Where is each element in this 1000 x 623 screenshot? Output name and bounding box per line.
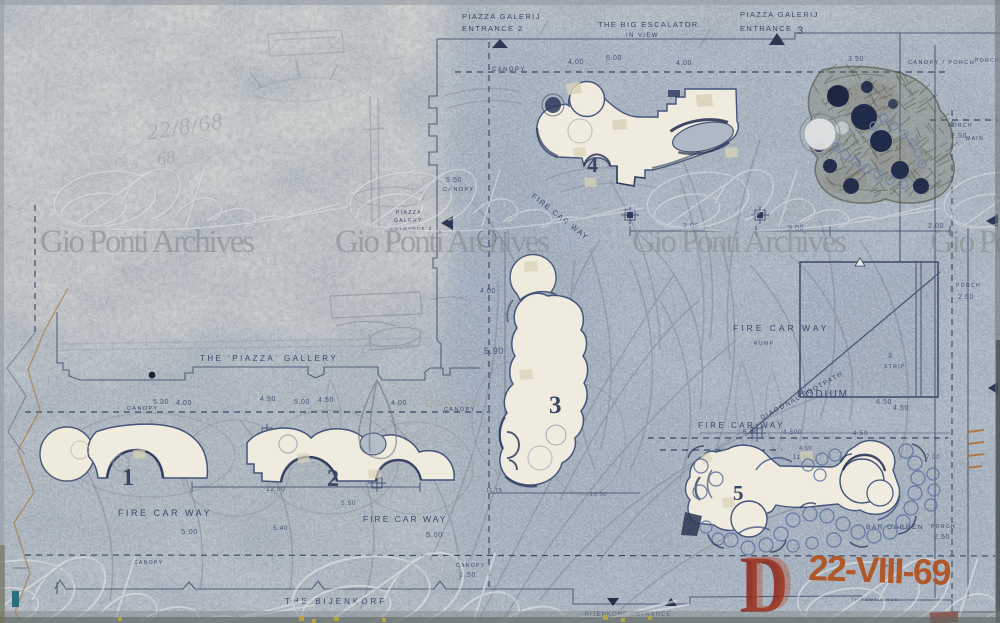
svg-text:THE BIG ESCALATOR: THE BIG ESCALATOR [598,20,699,29]
svg-text:12.00: 12.00 [266,486,285,493]
svg-text:4: 4 [587,152,598,177]
svg-text:1: 1 [122,465,134,491]
svg-text:D: D [745,538,794,623]
svg-text:11.75: 11.75 [486,488,502,494]
svg-text:5.50: 5.50 [446,177,462,184]
svg-text:CANOPY / PORCH: CANOPY / PORCH [908,60,975,66]
svg-text:CANOPY: CANOPY [492,67,526,73]
svg-text:5.00: 5.00 [294,399,310,406]
svg-text:ENTRANCE 2: ENTRANCE 2 [462,24,524,33]
svg-text:4.00: 4.00 [176,400,192,407]
svg-text:STRIP: STRIP [884,364,906,370]
svg-text:5.00: 5.00 [426,530,443,539]
svg-text:4.50: 4.50 [799,446,812,452]
svg-text:FIRE CAR WAY: FIRE CAR WAY [118,508,212,518]
svg-text:RUMP: RUMP [754,341,774,347]
svg-text:2.50: 2.50 [958,294,974,301]
svg-text:MAIN: MAIN [966,136,984,142]
svg-text:2.50: 2.50 [934,534,950,541]
svg-text:FIRE CAR WAY: FIRE CAR WAY [698,421,785,430]
svg-text:4.00: 4.00 [391,400,407,407]
svg-text:FIRE CAR WAY: FIRE CAR WAY [363,514,447,524]
svg-text:4.00: 4.00 [676,60,692,67]
svg-text:ENTRANCE: ENTRANCE [740,24,792,33]
svg-text:FIRE CAR WAY: FIRE CAR WAY [733,323,829,333]
svg-text:4.50: 4.50 [318,397,334,404]
svg-text:THE 'PIAZZA' GALLERY: THE 'PIAZZA' GALLERY [200,354,338,363]
svg-text:4.50: 4.50 [853,430,868,437]
svg-text:10.00: 10.00 [590,492,607,498]
svg-text:CANOPY: CANOPY [134,560,164,566]
svg-text:PORCH: PORCH [948,123,973,129]
svg-text:4.00: 4.00 [480,288,496,295]
svg-text:6.50: 6.50 [876,399,892,406]
svg-text:3.50: 3.50 [848,56,864,63]
svg-text:5: 5 [733,481,744,505]
svg-text:PORCH: PORCH [956,283,981,289]
svg-text:4.50: 4.50 [893,405,909,412]
svg-text:PODIUM: PODIUM [797,389,849,400]
svg-text:5.30: 5.30 [153,399,169,406]
svg-text:5.00: 5.00 [181,527,198,536]
svg-text:Gio Ponti Archives: Gio Ponti Archives [335,224,550,260]
svg-text:IN VIEW: IN VIEW [626,33,659,39]
svg-text:3: 3 [797,25,805,37]
svg-text:PIAZZA GALERIJ: PIAZZA GALERIJ [462,12,541,21]
svg-text:Gio Ponti Archives: Gio Ponti Archives [632,224,847,260]
svg-text:4.00: 4.00 [568,59,584,66]
svg-text:CANOPY: CANOPY [443,187,475,193]
svg-text:5.50: 5.50 [341,500,356,507]
svg-text:PIAZZA GALERIJ: PIAZZA GALERIJ [740,10,819,19]
svg-text:7.00: 7.00 [926,455,940,461]
svg-text:CANOPY: CANOPY [425,398,483,410]
svg-text:5.40: 5.40 [273,525,288,532]
svg-text:68: 68 [155,146,176,169]
svg-text:5.90: 5.90 [484,346,504,356]
svg-text:3: 3 [888,353,893,360]
svg-text:3: 3 [549,392,562,419]
svg-text:PORCH: PORCH [931,524,956,530]
svg-text:2: 2 [327,466,339,492]
svg-text:Gio Ponti Archives: Gio Ponti Archives [930,224,1000,260]
svg-text:Gio Ponti Archives: Gio Ponti Archives [40,224,255,260]
svg-text:4.500: 4.500 [783,429,802,436]
svg-text:6.00: 6.00 [606,55,622,62]
svg-text:CANOPY: CANOPY [127,406,159,412]
svg-text:22-VIII-69: 22-VIII-69 [808,547,952,593]
svg-text:5.00: 5.00 [743,429,758,436]
svg-text:4.90: 4.90 [260,396,276,403]
